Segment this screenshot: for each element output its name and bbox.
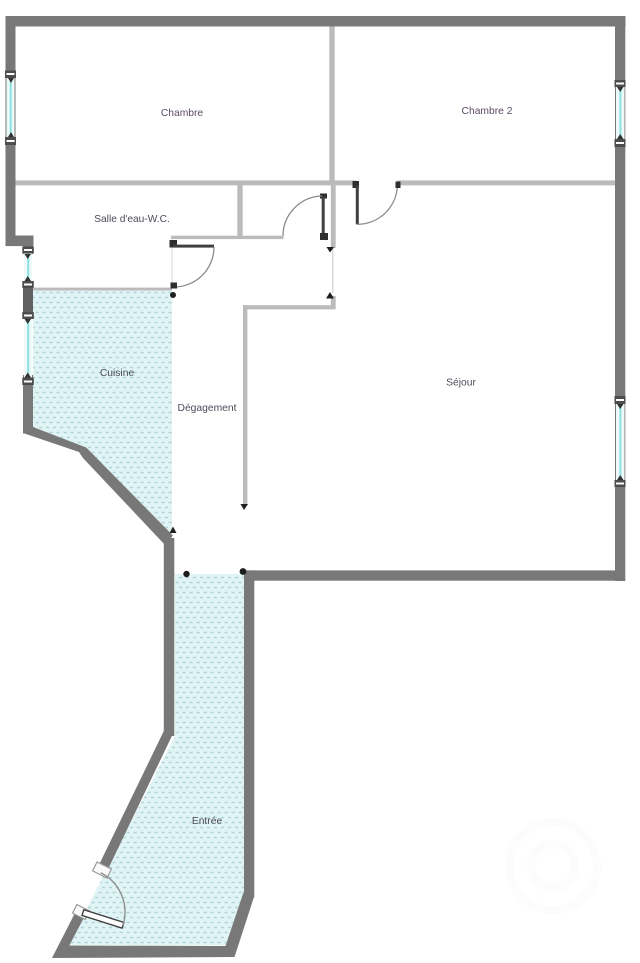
svg-text:Salle d'eau-W.C.: Salle d'eau-W.C. [94,214,170,225]
svg-text:Cuisine: Cuisine [100,368,135,379]
svg-text:Séjour: Séjour [446,378,476,389]
svg-text:Dégagement: Dégagement [178,403,237,414]
svg-text:Chambre: Chambre [161,108,204,119]
svg-text:Entrée: Entrée [192,816,223,827]
svg-text:Chambre 2: Chambre 2 [462,106,513,117]
